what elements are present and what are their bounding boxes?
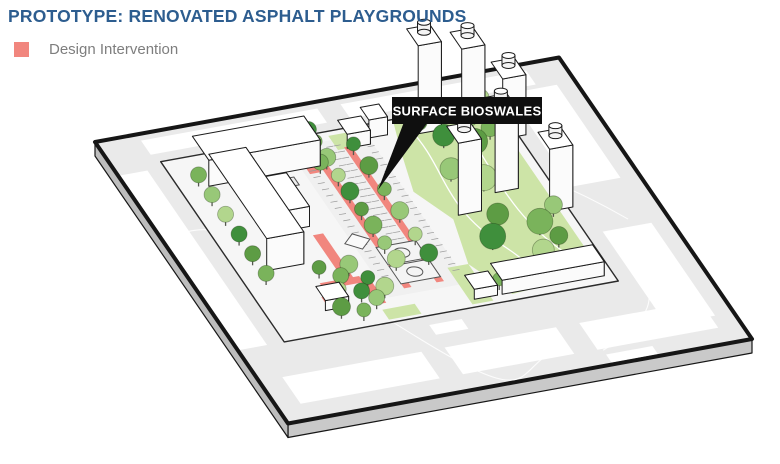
design-intervention-swatch	[14, 42, 29, 57]
page-title: PROTOTYPE: RENOVATED ASPHALT PLAYGROUNDS	[8, 6, 467, 27]
site-isometric-diagram: SURFACE BIOSWALES	[0, 0, 780, 464]
header: PROTOTYPE: RENOVATED ASPHALT PLAYGROUNDS…	[8, 6, 467, 58]
legend-label: Design Intervention	[49, 41, 178, 58]
callout-label: SURFACE BIOSWALES	[393, 104, 542, 119]
legend: Design Intervention	[14, 41, 467, 58]
prototype-diagram-page: PROTOTYPE: RENOVATED ASPHALT PLAYGROUNDS…	[0, 0, 780, 464]
